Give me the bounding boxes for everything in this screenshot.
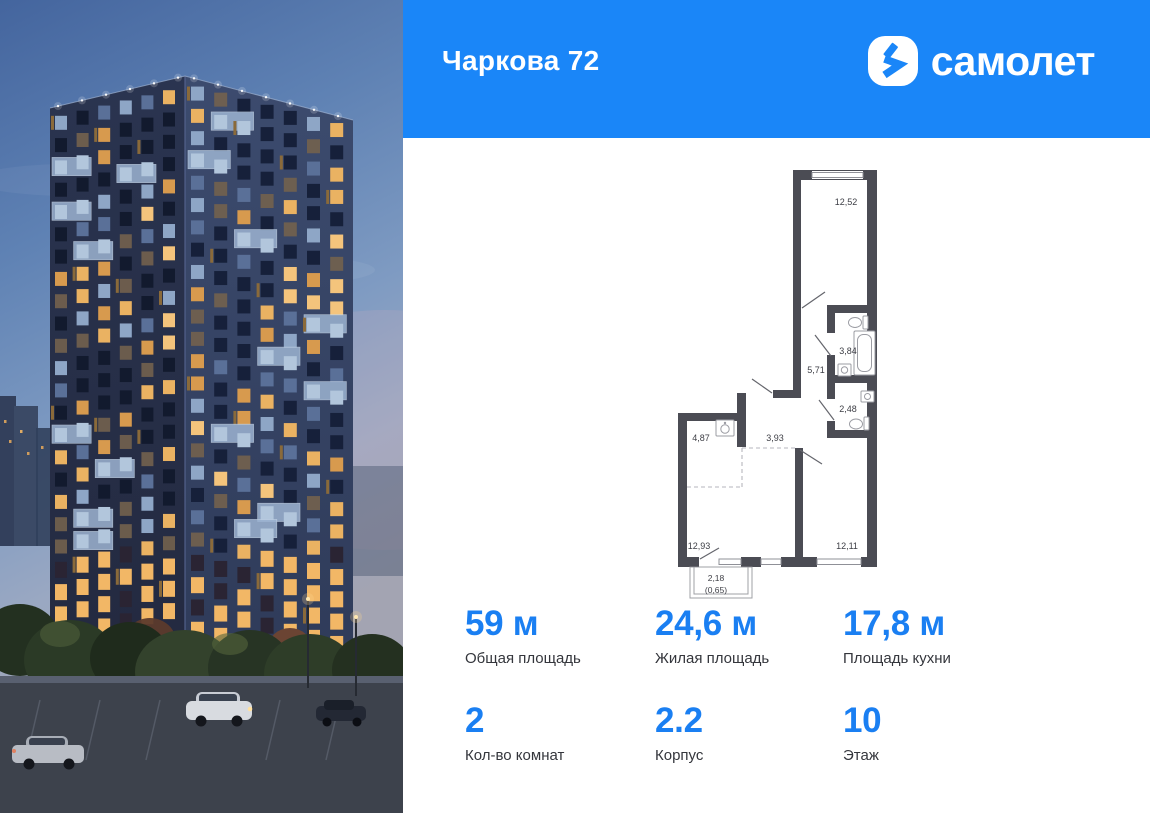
wc-sink-icon: [861, 391, 874, 402]
stat-rooms: 2 Кол-во комнат: [465, 703, 655, 764]
building-photo-art: [0, 0, 403, 813]
stat-kitchen-area-label: Площадь кухни: [843, 650, 1100, 667]
stat-floor-label: Этаж: [843, 747, 1100, 764]
stat-living-area-label: Жилая площадь: [655, 650, 843, 667]
toilet-icon: [849, 316, 869, 329]
stat-total-area-label: Общая площадь: [465, 650, 655, 667]
brand-logo: самолет: [868, 36, 1095, 86]
stat-kitchen-area-value: 17,8 м: [843, 606, 1100, 641]
room-label-balcony-sub: (0,65): [705, 585, 727, 595]
room-label-living: 12,93: [688, 541, 711, 551]
brand-name: самолет: [931, 41, 1095, 82]
sink-icon: [838, 364, 851, 376]
stat-living-area: 24,6 м Жилая площадь: [655, 606, 843, 667]
room-label-hall: 3,93: [766, 433, 784, 443]
room-label-top: 12,52: [835, 197, 858, 207]
stat-building-label: Корпус: [655, 747, 843, 764]
room-label-balcony: 2,18: [708, 573, 725, 583]
room-label-wc: 2,48: [839, 404, 857, 414]
wc-toilet-icon: [850, 417, 870, 430]
stat-building-value: 2.2: [655, 703, 843, 738]
room-label-bath: 3,84: [839, 346, 857, 356]
header: Чаркова 72 самолет: [403, 0, 1150, 138]
stat-rooms-value: 2: [465, 703, 655, 738]
zone-dashes: [687, 448, 795, 487]
stat-building: 2.2 Корпус: [655, 703, 843, 764]
building-photo: [0, 0, 403, 813]
room-label-hallway: 5,71: [807, 365, 825, 375]
stat-floor-value: 10: [843, 703, 1100, 738]
stat-rooms-label: Кол-во комнат: [465, 747, 655, 764]
stat-total-area: 59 м Общая площадь: [465, 606, 655, 667]
kitchen-sink-icon: [716, 420, 734, 436]
tower-corner-edge: [184, 76, 186, 700]
stat-kitchen-area: 17,8 м Площадь кухни: [843, 606, 1100, 667]
stat-total-area-value: 59 м: [465, 606, 655, 641]
stat-living-area-value: 24,6 м: [655, 606, 843, 641]
project-title: Чаркова 72: [442, 45, 599, 77]
apartment-stats: 59 м Общая площадь 24,6 м Жилая площадь …: [465, 606, 1100, 764]
floor-plan: 12,52 3,84 5,71 2,48 4,87 3,93 12,93 12,…: [664, 158, 888, 606]
room-label-bedroom: 12,11: [836, 541, 858, 551]
samolet-logo-icon: [868, 36, 918, 86]
room-label-kitchen: 4,87: [692, 433, 710, 443]
stat-floor: 10 Этаж: [843, 703, 1100, 764]
bathtub-icon: [854, 331, 875, 375]
